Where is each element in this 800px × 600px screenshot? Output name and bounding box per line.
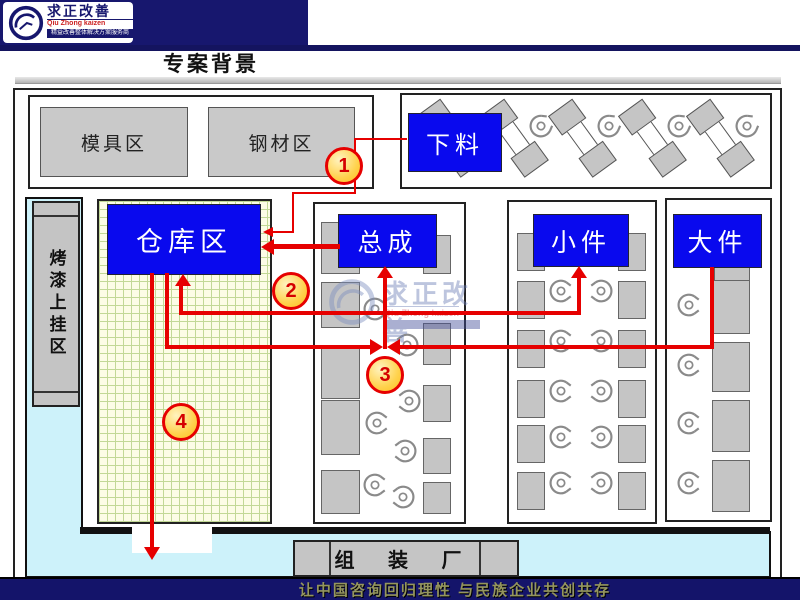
storage-rack [423,385,451,422]
storage-rack [321,400,360,455]
worker-icon [588,278,614,304]
flow-line [272,244,340,249]
storage-rack [712,400,750,452]
flow-arrowhead [571,266,587,278]
large-parts-box: 大件 [673,214,762,268]
storage-rack [712,280,750,334]
assembly-box: 总成 [338,214,437,268]
storage-rack [517,425,545,463]
worker-icon [676,410,702,436]
storage-rack [618,472,646,510]
storage-rack [618,425,646,463]
mold-area-label: 模具区 [81,129,147,156]
worker-icon [676,470,702,496]
watermark-emblem-icon [328,278,376,326]
mold-area-box: 模具区 [40,107,188,177]
flow-line [165,273,169,349]
flow-arrowhead [175,274,191,286]
worker-icon [548,278,574,304]
worker-icon [588,378,614,404]
warehouse-box: 仓库区 [107,204,261,275]
worker-icon [390,484,416,510]
flow-line [150,273,154,549]
flow-line [165,345,373,349]
worker-icon [676,352,702,378]
flow-arrowhead [370,339,383,355]
slide-page: 求正改善 Qiu Zhong kaizen 精益改善整体解决方案服务商 专案背景… [0,0,800,600]
flow-arrowhead [144,547,160,560]
flow-line [355,138,407,140]
steel-area-label: 钢材区 [248,129,314,156]
warehouse-label: 仓库区 [136,220,232,259]
flow-step-1: 1 [325,147,363,185]
flow-line [292,192,356,194]
worker-icon [548,378,574,404]
storage-rack [712,342,750,392]
paint-hang-area-label: 烤漆上挂区 [44,249,69,359]
worker-icon [588,328,614,354]
storage-rack [618,281,646,319]
small-parts-box: 小件 [533,214,629,267]
storage-rack [321,345,360,399]
large-parts-label: 大件 [687,223,747,259]
assembly-plant-label: 组 装 厂 [331,542,479,575]
flow-step-2: 2 [272,272,310,310]
worker-icon [548,328,574,354]
worker-icon [392,438,418,464]
flow-step-3: 3 [366,356,404,394]
worker-icon [676,292,702,318]
storage-rack [618,330,646,368]
flow-arrowhead [377,266,393,278]
storage-rack [423,482,451,514]
worker-icon [548,470,574,496]
paint-hang-area-box: 烤漆上挂区 [32,201,80,407]
flow-line [710,267,714,349]
assembly-label: 总成 [357,223,417,259]
flow-arrowhead [261,239,274,255]
flow-arrowhead [387,339,400,355]
flow-line [292,192,294,233]
worker-icon [364,410,390,436]
small-parts-label: 小件 [551,223,611,259]
worker-icon [588,424,614,450]
flow-line [396,345,712,349]
flow-line [179,311,581,315]
storage-rack [618,380,646,418]
storage-rack [423,438,451,474]
storage-rack [517,330,545,368]
cutting-label: 下料 [426,125,484,160]
cutting-box: 下料 [408,113,502,172]
flow-line [577,277,581,315]
footer-slogan: 让中国咨询回归理性 与民族企业共创共存 [299,579,611,600]
footer-bar: 让中国咨询回归理性 与民族企业共创共存 [0,577,800,600]
worker-icon [362,472,388,498]
storage-rack [517,380,545,418]
flow-step-4: 4 [162,403,200,441]
storage-rack [517,472,545,510]
worker-icon [396,388,422,414]
storage-rack [321,470,360,514]
worker-icon [588,470,614,496]
worker-icon [548,424,574,450]
flow-arrowhead [263,227,273,237]
storage-rack [712,460,750,512]
assembly-plant-box: 组 装 厂 [293,540,519,577]
flow-line [272,231,294,233]
